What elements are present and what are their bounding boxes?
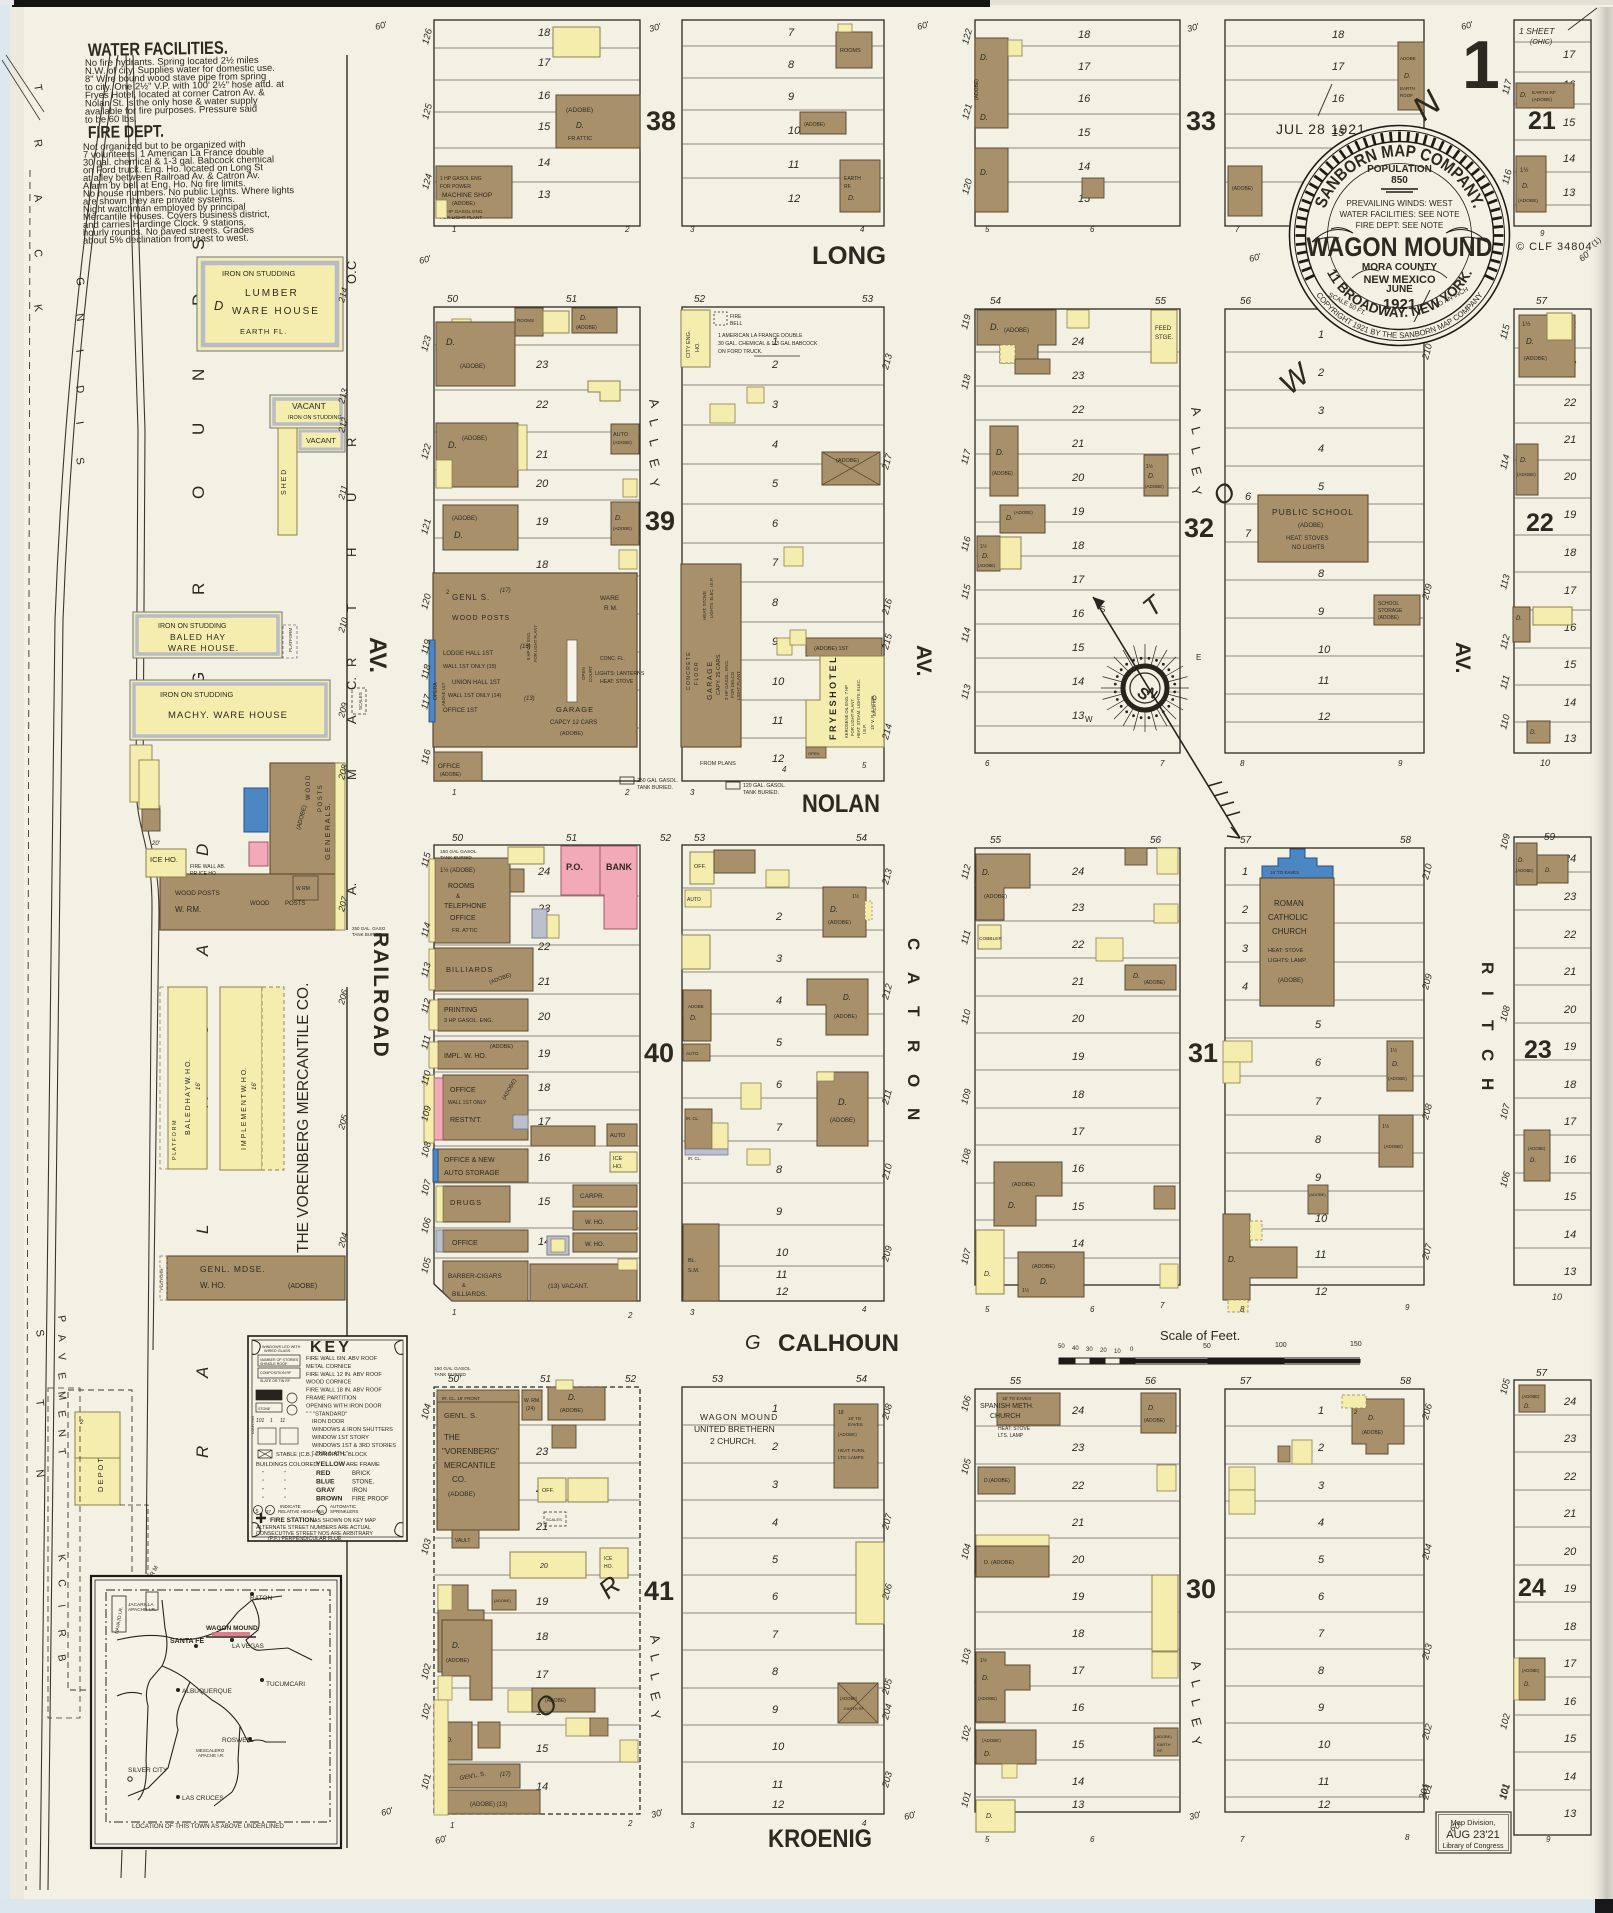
svg-text:HEAT: STEAM. LIGHTS: ELEC.: HEAT: STEAM. LIGHTS: ELEC. — [856, 679, 861, 738]
svg-text:23: 23 — [1071, 1442, 1085, 1454]
svg-text:18: 18 — [538, 27, 551, 39]
svg-text:24: 24 — [537, 866, 550, 878]
svg-text:ABOVE 1ST: ABOVE 1ST — [441, 682, 446, 706]
svg-text:RF.: RF. — [1157, 1748, 1163, 1753]
svg-text:": " — [262, 1488, 264, 1494]
svg-text:FOR LIGHT PLANT.: FOR LIGHT PLANT. — [850, 698, 855, 736]
svg-text:13: 13 — [1072, 710, 1085, 722]
svg-text:21: 21 — [1563, 966, 1576, 978]
svg-text:ON FORD TRUCK.: ON FORD TRUCK. — [718, 349, 763, 355]
svg-text:IRON: IRON — [352, 1488, 367, 1494]
svg-text:18: 18 — [1072, 1089, 1085, 1101]
svg-text:2: 2 — [627, 1311, 633, 1320]
svg-text:24: 24 — [1563, 1396, 1576, 1408]
svg-text:23: 23 — [1071, 370, 1085, 382]
svg-text:23: 23 — [535, 1446, 549, 1458]
svg-text:SLATE OR TIN RF: SLATE OR TIN RF — [260, 1379, 291, 1383]
svg-text:7: 7 — [1160, 1301, 1165, 1310]
svg-text:A: A — [904, 972, 923, 984]
svg-text:30 GAL. CHEMICAL & 1-3 GAL BAB: 30 GAL. CHEMICAL & 1-3 GAL BABCOCK — [718, 341, 818, 347]
svg-text:U: U — [344, 493, 359, 502]
svg-text:D.: D. — [996, 448, 1004, 457]
svg-text:1: 1 — [452, 1308, 456, 1317]
svg-text:12: 12 — [788, 193, 800, 205]
svg-text:150: 150 — [1350, 1341, 1362, 1348]
svg-text:5: 5 — [985, 1305, 990, 1314]
svg-text:GEN'L. S.: GEN'L. S. — [444, 1411, 477, 1420]
svg-text:EARTH: EARTH — [844, 176, 861, 182]
svg-text:6: 6 — [776, 1079, 783, 1091]
svg-text:33: 33 — [1186, 106, 1216, 136]
svg-text:1: 1 — [452, 788, 456, 797]
svg-text:UNITED BRETHERN: UNITED BRETHERN — [694, 1424, 775, 1434]
svg-text:PRINTING: PRINTING — [444, 1007, 477, 1014]
svg-text:(ADOBE): (ADOBE) — [1144, 980, 1165, 986]
svg-text:E: E — [1196, 653, 1201, 662]
svg-text:HEAT: STOVE: HEAT: STOVE — [998, 1426, 1031, 1432]
svg-text:19: 19 — [1564, 1583, 1576, 1595]
svg-text:15: 15 — [1072, 1201, 1085, 1213]
svg-text:19: 19 — [1564, 509, 1576, 521]
svg-text:JUNE: JUNE — [1386, 284, 1413, 295]
svg-text:C: C — [344, 261, 359, 270]
svg-text:1½: 1½ — [1382, 1123, 1390, 1130]
svg-text:D.(ADOBE): D.(ADOBE) — [984, 1478, 1010, 1484]
svg-text:D: D — [193, 844, 212, 856]
svg-text:A.: A. — [344, 883, 359, 895]
svg-text:13: 13 — [538, 189, 551, 201]
svg-text:1: 1 — [1318, 1405, 1324, 1417]
svg-text:A: A — [193, 945, 212, 957]
svg-text:2 HP GASOL. ENG.: 2 HP GASOL. ENG. — [724, 660, 729, 700]
svg-text:BELL: BELL — [730, 321, 742, 327]
svg-text:BANK: BANK — [606, 862, 632, 872]
svg-text:D.: D. — [1006, 515, 1013, 522]
svg-text:11: 11 — [772, 1779, 783, 1791]
svg-text:14: 14 — [1078, 161, 1090, 173]
svg-text:STORAGE: STORAGE — [1378, 608, 1403, 614]
svg-text:COURT: COURT — [588, 666, 593, 682]
svg-text:PREVAILING WINDS: WEST: PREVAILING WINDS: WEST — [1346, 199, 1452, 208]
svg-text:FEED: FEED — [1155, 326, 1172, 332]
svg-text:7: 7 — [1245, 528, 1252, 540]
svg-text:FOR LIGHT PLANT: FOR LIGHT PLANT — [533, 625, 538, 662]
svg-text:16' TO EAVES: 16' TO EAVES — [1270, 870, 1299, 875]
svg-text:17: 17 — [1072, 1665, 1085, 1677]
svg-text:11: 11 — [788, 159, 799, 171]
svg-text:R: R — [344, 438, 359, 447]
svg-text:CHURCH: CHURCH — [1272, 927, 1307, 936]
svg-text:Scale of Feet.: Scale of Feet. — [1160, 1328, 1240, 1343]
svg-text:30: 30 — [1186, 1574, 1216, 1604]
svg-text:2: 2 — [775, 911, 782, 923]
svg-text:101: 101 — [256, 1418, 265, 1424]
svg-text:ROOMS: ROOMS — [448, 883, 475, 890]
svg-text:VAULT: VAULT — [455, 1538, 470, 1544]
svg-text:VACANT: VACANT — [306, 436, 336, 445]
svg-text:7: 7 — [1240, 1835, 1245, 1844]
svg-text:9: 9 — [776, 1206, 782, 1218]
svg-text:(ADOBE): (ADOBE) — [490, 1044, 513, 1050]
svg-text:18: 18 — [1332, 29, 1345, 41]
svg-text:FIRE WALL 12 IN. ABV ROOF: FIRE WALL 12 IN. ABV ROOF — [306, 1372, 382, 1378]
svg-text:8: 8 — [776, 1164, 783, 1176]
svg-text:OFFICE: OFFICE — [450, 1087, 476, 1094]
svg-text:(ADOBE): (ADOBE) — [494, 1598, 511, 1603]
svg-text:MACHY. WARE HOUSE: MACHY. WARE HOUSE — [168, 710, 288, 721]
svg-text:CITY ENG.: CITY ENG. — [686, 330, 692, 358]
svg-text:MACHINE SHOP: MACHINE SHOP — [442, 192, 492, 199]
svg-text:52: 52 — [625, 1374, 637, 1385]
svg-text:ADOBE: ADOBE — [1400, 56, 1416, 61]
svg-text:AV.: AV. — [912, 645, 935, 677]
svg-text:6: 6 — [1090, 1305, 1095, 1314]
svg-text:22: 22 — [1526, 509, 1554, 537]
svg-text:RELATIVE HEIGHTS: RELATIVE HEIGHTS — [278, 1509, 321, 1514]
svg-text:W. HO.: W. HO. — [200, 1281, 226, 1290]
svg-text:NOLAN: NOLAN — [802, 790, 880, 818]
svg-text:24: 24 — [1071, 1405, 1084, 1417]
svg-text:(ADOBE): (ADOBE) — [613, 526, 632, 531]
svg-text:DRUGS: DRUGS — [450, 1198, 482, 1207]
svg-text:TUCUMCARI: TUCUMCARI — [266, 1681, 305, 1688]
svg-text:D. (ADOBE): D. (ADOBE) — [984, 1560, 1014, 1566]
svg-text:(ADOBE): (ADOBE) — [1378, 615, 1399, 621]
svg-text:11: 11 — [1315, 1249, 1326, 1261]
svg-text:20: 20 — [1071, 1554, 1085, 1566]
svg-text:(ADOBE): (ADOBE) — [576, 325, 597, 331]
svg-text:5: 5 — [1318, 1554, 1325, 1566]
svg-text:B A L E D H A Y W. H O.: B A L E D H A Y W. H O. — [185, 1060, 192, 1135]
svg-text:18: 18 — [1072, 540, 1085, 552]
svg-text:18: 18 — [536, 1631, 549, 1643]
svg-text:S.M.: S.M. — [688, 1268, 700, 1274]
svg-text:S: S — [1100, 605, 1105, 614]
svg-text:(ADOBE): (ADOBE) — [452, 516, 477, 522]
svg-text:16': 16' — [252, 1081, 258, 1090]
svg-text:2: 2 — [1317, 367, 1324, 379]
svg-text:51: 51 — [566, 294, 577, 305]
svg-text:COUNTING: COUNTING — [251, 1416, 255, 1434]
svg-text:1 AMERICAN LA FRANCE DOUBLE: 1 AMERICAN LA FRANCE DOUBLE — [718, 333, 803, 339]
svg-text:IMPL. W. HO.: IMPL. W. HO. — [444, 1053, 487, 1060]
svg-text:8: 8 — [788, 59, 795, 71]
svg-text:PLATFORM: PLATFORM — [159, 1269, 164, 1290]
svg-text:A: A — [193, 1367, 212, 1379]
svg-text:POPULATION: POPULATION — [1367, 164, 1432, 175]
svg-text:3: 3 — [772, 1479, 779, 1491]
svg-text:54: 54 — [856, 833, 868, 844]
svg-text:FROM PLANS: FROM PLANS — [700, 761, 736, 767]
svg-text:BARBER-CIGARS: BARBER-CIGARS — [448, 1273, 502, 1280]
svg-text:GRAY: GRAY — [316, 1487, 335, 1494]
svg-text:14: 14 — [1564, 1771, 1576, 1783]
svg-text:": " — [284, 1480, 286, 1486]
svg-text:AUTO: AUTO — [610, 1133, 626, 1139]
svg-text:D.: D. — [1148, 1405, 1155, 1412]
svg-text:LIGHT PLANT.: LIGHT PLANT. — [736, 670, 741, 700]
svg-text:WALL 1ST ONLY: WALL 1ST ONLY — [448, 1100, 487, 1106]
svg-text:(ADOBE): (ADOBE) — [1278, 978, 1303, 984]
svg-text:(ADOBE): (ADOBE) — [1524, 356, 1547, 362]
svg-text:16: 16 — [1072, 1163, 1085, 1175]
svg-text:M: M — [344, 769, 359, 780]
svg-text:7: 7 — [788, 27, 795, 39]
svg-text:HEAT: STOVE: HEAT: STOVE — [600, 679, 634, 685]
svg-text:(17): (17) — [500, 1772, 511, 1778]
svg-text:22: 22 — [1071, 939, 1084, 951]
svg-text:55: 55 — [990, 835, 1002, 846]
svg-text:50: 50 — [1203, 1343, 1211, 1350]
svg-text:5: 5 — [985, 225, 990, 234]
svg-text:LUMBER: LUMBER — [245, 288, 299, 299]
svg-text:IRON ON STUDDING: IRON ON STUDDING — [288, 415, 342, 421]
svg-text:D.: D. — [843, 993, 851, 1002]
svg-text:CALHOUN: CALHOUN — [778, 1330, 899, 1357]
svg-text:2: 2 — [771, 1441, 778, 1453]
svg-text:D.: D. — [982, 868, 990, 877]
svg-text:14: 14 — [538, 157, 550, 169]
svg-text:WAGON MOUND: WAGON MOUND — [206, 1625, 258, 1632]
svg-text:I.E.P.: I.E.P. — [862, 724, 867, 734]
svg-text:22: 22 — [1563, 929, 1576, 941]
svg-text:WINDOWS & IRON SHUTTERS: WINDOWS & IRON SHUTTERS — [312, 1427, 393, 1433]
svg-text:1: 1 — [452, 225, 456, 234]
svg-text:19: 19 — [1072, 1591, 1084, 1603]
svg-text:2 CHURCH.: 2 CHURCH. — [710, 1436, 756, 1446]
svg-text:&: & — [462, 1283, 466, 1289]
svg-text:OFF.: OFF. — [542, 1488, 554, 1494]
svg-text:FR ATTIC: FR ATTIC — [568, 136, 592, 142]
svg-text:12: 12 — [772, 1799, 784, 1811]
svg-text:EARTH RF: EARTH RF — [844, 1706, 864, 1711]
svg-text:(ADOBE): (ADOBE) — [560, 1408, 583, 1414]
svg-text:POSTS: POSTS — [285, 901, 305, 907]
svg-text:WARE: WARE — [600, 595, 620, 602]
svg-text:EARTH FL.: EARTH FL. — [240, 327, 287, 336]
svg-text:6: 6 — [1245, 491, 1252, 503]
svg-text:18' TO EAVES: 18' TO EAVES — [1002, 1396, 1031, 1401]
svg-text:57: 57 — [1536, 1368, 1548, 1379]
svg-text:1½: 1½ — [852, 893, 860, 900]
svg-text:C.: C. — [344, 677, 359, 690]
svg-text:10: 10 — [776, 1247, 789, 1259]
svg-text:COMPOSITION RF: COMPOSITION RF — [260, 1371, 292, 1375]
svg-text:WOOD POSTS: WOOD POSTS — [452, 615, 510, 622]
svg-text:(ADOBE): (ADOBE) — [1232, 186, 1253, 192]
svg-text:18: 18 — [1078, 29, 1091, 41]
svg-text:TANK BURIED.: TANK BURIED. — [637, 785, 673, 791]
svg-text:WOOD: WOOD — [250, 901, 270, 907]
svg-text:&: & — [456, 894, 460, 900]
svg-text:57: 57 — [1240, 835, 1252, 846]
svg-text:D.: D. — [1520, 92, 1527, 99]
svg-text:PUBLIC SCHOOL: PUBLIC SCHOOL — [1272, 507, 1354, 517]
svg-text:38: 38 — [646, 106, 676, 136]
svg-text:20': 20' — [151, 841, 161, 847]
svg-text:8: 8 — [772, 597, 779, 609]
svg-text:50: 50 — [452, 833, 464, 844]
svg-text:3: 3 — [1242, 943, 1249, 955]
svg-text:SCHOOL: SCHOOL — [1378, 601, 1399, 607]
svg-text:2: 2 — [624, 225, 630, 234]
svg-text:7: 7 — [1160, 759, 1165, 768]
svg-text:9: 9 — [1540, 229, 1545, 238]
svg-text:D.: D. — [615, 515, 622, 522]
svg-text:BALED HAY: BALED HAY — [170, 632, 226, 642]
svg-text:SPANISH METH.: SPANISH METH. — [980, 1403, 1034, 1410]
svg-text:REST'N'T.: REST'N'T. — [450, 1117, 482, 1124]
svg-text:WAGON MOUND: WAGON MOUND — [1307, 232, 1493, 262]
svg-text:HO.: HO. — [604, 1564, 613, 1570]
svg-text:R: R — [189, 583, 208, 595]
svg-text:18: 18 — [538, 1082, 551, 1094]
svg-text:D.: D. — [1392, 1061, 1399, 1068]
svg-text:FIRE WALL AB.: FIRE WALL AB. — [190, 864, 225, 870]
svg-text:4: 4 — [772, 1517, 778, 1529]
svg-text:8: 8 — [1240, 759, 1245, 768]
svg-text:R: R — [344, 658, 359, 667]
svg-text:LTS. LAMP: LTS. LAMP — [998, 1433, 1024, 1439]
svg-text:": " — [284, 1471, 286, 1477]
svg-text:IR. CL.: IR. CL. — [686, 1116, 699, 1121]
svg-text:THE: THE — [444, 1433, 460, 1442]
svg-text:D.: D. — [1148, 473, 1155, 480]
svg-text:51: 51 — [566, 833, 577, 844]
svg-text:D.: D. — [986, 1813, 993, 1820]
svg-text:6: 6 — [1315, 1057, 1322, 1069]
svg-text:(ADOBE): (ADOBE) — [984, 894, 1007, 900]
svg-text:55: 55 — [1010, 1376, 1022, 1387]
svg-text:2: 2 — [624, 788, 630, 797]
svg-text:9: 9 — [788, 91, 794, 103]
svg-text:18: 18 — [536, 559, 549, 571]
svg-text:(ADOBE): (ADOBE) — [448, 1491, 475, 1498]
svg-text:19: 19 — [1072, 1051, 1084, 1063]
svg-text:32: 32 — [1184, 513, 1214, 543]
svg-text:D.: D. — [1530, 730, 1536, 736]
svg-text:(ADOBE): (ADOBE) — [1528, 1146, 1546, 1151]
svg-text:6: 6 — [1090, 225, 1095, 234]
svg-text:AUTO: AUTO — [686, 1051, 699, 1056]
svg-text:T: T — [344, 604, 359, 612]
svg-text:3 HP GASOL. ENG.: 3 HP GASOL. ENG. — [444, 1018, 494, 1024]
svg-text:STGE.: STGE. — [1155, 335, 1173, 341]
svg-text:D E P O T: D E P O T — [96, 1458, 105, 1492]
svg-text:KROENIG: KROENIG — [768, 1825, 872, 1853]
svg-text:19: 19 — [1564, 1041, 1576, 1053]
svg-text:L: L — [193, 1225, 212, 1234]
svg-text:7: 7 — [772, 557, 779, 569]
svg-text:(ADOBE): (ADOBE) — [1014, 510, 1033, 515]
svg-text:U: U — [189, 423, 208, 435]
svg-text:I M P L E M E N T W. H O.: I M P L E M E N T W. H O. — [241, 1068, 248, 1150]
svg-text:D.: D. — [838, 1097, 847, 1107]
svg-text:4: 4 — [860, 225, 865, 234]
svg-text:IRON ON STUDDING: IRON ON STUDDING — [160, 690, 234, 699]
svg-text:22: 22 — [1071, 1480, 1084, 1492]
svg-text:STABLE (C.B.)-CONCRETE BLOCK: STABLE (C.B.)-CONCRETE BLOCK — [276, 1452, 367, 1458]
svg-text:(ADOBE): (ADOBE) — [982, 1738, 1001, 1743]
svg-text:METAL CORNICE: METAL CORNICE — [306, 1364, 352, 1370]
svg-text:12: 12 — [776, 1286, 788, 1298]
svg-text:BRICK: BRICK — [352, 1471, 370, 1477]
svg-text:16: 16 — [1564, 1154, 1577, 1166]
svg-text:(ADOBE) (13): (ADOBE) (13) — [470, 1802, 507, 1808]
svg-text:850: 850 — [1391, 175, 1408, 186]
svg-text:250 GAL GASOL.: 250 GAL GASOL. — [637, 778, 678, 784]
svg-text:18: 18 — [1564, 1621, 1577, 1633]
svg-text:(ADOBE): (ADOBE) — [460, 364, 485, 370]
svg-text:ROOMS: ROOMS — [517, 318, 534, 323]
svg-text:S H E D: S H E D — [281, 470, 288, 495]
svg-text:24: 24 — [1071, 336, 1084, 348]
svg-text:FIRE WALL 18 IN. ABV ROOF: FIRE WALL 18 IN. ABV ROOF — [306, 1388, 382, 1394]
svg-text:(ADOBE): (ADOBE) — [452, 201, 475, 207]
svg-text:D.: D. — [982, 553, 989, 560]
svg-text:40: 40 — [1072, 1346, 1079, 1352]
svg-text:D.: D. — [580, 315, 587, 322]
svg-text:12: 12 — [1315, 1286, 1327, 1298]
svg-text:O: O — [189, 486, 208, 499]
svg-text:TELEPHONE: TELEPHONE — [444, 903, 487, 910]
svg-text:NO LIGHTS: NO LIGHTS — [1292, 545, 1324, 551]
svg-text:T: T — [1478, 1020, 1497, 1031]
svg-text:RATON: RATON — [250, 1595, 272, 1602]
svg-text:BROWN: BROWN — [316, 1496, 343, 1503]
svg-text:(ADOBE): (ADOBE) — [1517, 472, 1536, 477]
svg-text:9: 9 — [1315, 1172, 1321, 1184]
svg-text:(ADOBE): (ADOBE) — [1516, 868, 1534, 873]
svg-text:OFFICE: OFFICE — [450, 915, 476, 922]
svg-text:TANK BURIED.: TANK BURIED. — [743, 790, 779, 796]
svg-text:(ADOBE): (ADOBE) — [1532, 97, 1552, 103]
svg-text:IR. CL. 18' FRONT: IR. CL. 18' FRONT — [442, 1396, 480, 1401]
svg-text:(17): (17) — [500, 588, 511, 594]
svg-text:150 GAL GASOL: 150 GAL GASOL — [434, 1366, 471, 1372]
svg-text:WALL 1ST ONLY (15): WALL 1ST ONLY (15) — [443, 664, 497, 670]
svg-text:3: 3 — [690, 788, 695, 797]
svg-text:CONC. FL.: CONC. FL. — [600, 656, 625, 662]
svg-text:STONE.: STONE. — [352, 1480, 375, 1486]
svg-text:4: 4 — [782, 765, 787, 774]
svg-text:23: 23 — [1563, 1433, 1577, 1445]
svg-text:CATHOLIC: CATHOLIC — [1268, 913, 1308, 922]
svg-text:LIGHTS: ELEC. I.E.P.: LIGHTS: ELEC. I.E.P. — [709, 578, 714, 618]
svg-text:FR. ATTIC: FR. ATTIC — [452, 928, 478, 934]
svg-text:D.: D. — [1522, 183, 1529, 190]
svg-text:1½: 1½ — [1146, 463, 1154, 470]
svg-text:(ADOBE): (ADOBE) — [1012, 1182, 1035, 1188]
svg-text:(ADOBE): (ADOBE) — [288, 1283, 317, 1290]
svg-text:D.: D. — [980, 168, 988, 177]
svg-text:24: 24 — [1071, 866, 1084, 878]
svg-text:3: 3 — [690, 1821, 695, 1830]
svg-text:D.: D. — [1518, 858, 1524, 864]
svg-text:GENL. MDSE.: GENL. MDSE. — [200, 1264, 266, 1274]
svg-text:9: 9 — [772, 1704, 778, 1716]
svg-text:13: 13 — [1563, 187, 1576, 199]
svg-text:(ADOBE): (ADOBE) — [1032, 1264, 1055, 1270]
svg-text:D.: D. — [1404, 73, 1411, 80]
svg-text:ALBUQUERQUE: ALBUQUERQUE — [182, 1688, 233, 1695]
svg-text:22: 22 — [535, 399, 548, 411]
svg-text:21: 21 — [535, 1521, 548, 1533]
svg-text:12: 12 — [1318, 1799, 1330, 1811]
svg-text:11: 11 — [772, 715, 783, 727]
svg-text:7: 7 — [1318, 1628, 1325, 1640]
svg-text:D.: D. — [1524, 1682, 1530, 1688]
